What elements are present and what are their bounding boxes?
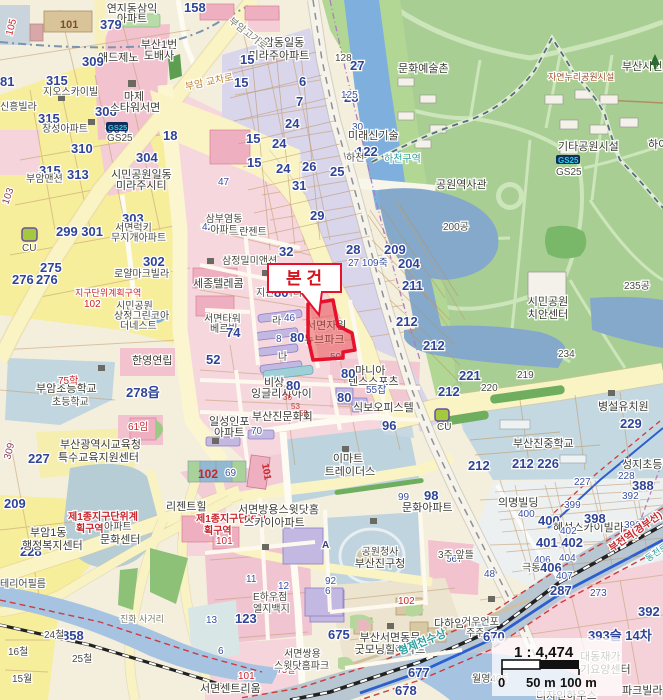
svg-text:13: 13	[206, 615, 218, 626]
svg-text:초등학교: 초등학교	[52, 396, 89, 408]
svg-text:GS25: GS25	[558, 156, 579, 165]
svg-text:미라주시티: 미라주시티	[116, 179, 167, 192]
svg-text:46: 46	[284, 313, 296, 324]
svg-text:100 m: 100 m	[560, 675, 597, 690]
svg-text:101: 101	[238, 671, 255, 682]
svg-text:성지초등학: 성지초등학	[622, 458, 663, 471]
svg-text:도배사: 도배사	[144, 49, 174, 62]
svg-text:81: 81	[0, 74, 14, 89]
svg-text:50 m: 50 m	[526, 675, 556, 690]
svg-text:부산진구청: 부산진구청	[355, 557, 406, 570]
svg-text:서면쌍용: 서면쌍용	[284, 648, 321, 660]
svg-text:리젠트힐: 리젠트힐	[166, 500, 206, 513]
svg-text:아파트: 아파트	[104, 521, 132, 533]
svg-text:3주 앞뜰: 3주 앞뜰	[438, 549, 474, 561]
svg-text:잉글리시아이: 잉글리시아이	[251, 387, 312, 400]
svg-text:CU: CU	[22, 243, 36, 254]
svg-text:1 : 4,474: 1 : 4,474	[514, 644, 574, 661]
svg-text:101: 101	[60, 19, 78, 31]
svg-text:400: 400	[518, 509, 535, 520]
svg-text:무지개아파트: 무지개아파트	[111, 232, 166, 244]
svg-text:59: 59	[299, 409, 308, 418]
svg-text:48: 48	[484, 569, 496, 580]
svg-text:테리어필름: 테리어필름	[0, 578, 46, 590]
svg-text:서면방용스윗닷홈: 서면방용스윗닷홈	[238, 502, 319, 516]
svg-text:102: 102	[198, 467, 218, 481]
svg-text:209: 209	[384, 242, 406, 257]
svg-text:287: 287	[550, 583, 572, 598]
svg-text:96: 96	[382, 418, 396, 433]
svg-text:677: 677	[408, 665, 430, 680]
svg-text:379: 379	[100, 17, 122, 32]
svg-text:128: 128	[335, 53, 352, 64]
svg-text:234: 234	[558, 349, 575, 360]
svg-text:74: 74	[226, 325, 241, 340]
svg-text:CU: CU	[437, 422, 451, 433]
svg-text:기타공원시설: 기타공원시설	[558, 140, 619, 153]
svg-text:29: 29	[310, 208, 324, 223]
svg-text:문화센터: 문화센터	[100, 533, 140, 546]
svg-text:221: 221	[459, 368, 481, 383]
svg-text:212 226: 212 226	[512, 456, 559, 471]
svg-text:하천: 하천	[346, 151, 364, 164]
svg-text:공원역사관: 공원역사관	[436, 178, 487, 191]
svg-text:204: 204	[398, 256, 420, 271]
svg-text:399: 399	[564, 500, 581, 511]
svg-text:시민공원: 시민공원	[528, 295, 568, 308]
svg-text:하이: 하이	[648, 137, 663, 151]
svg-text:엘지백지: 엘지백지	[253, 602, 290, 615]
svg-text:101: 101	[216, 536, 233, 547]
svg-text:276: 276	[36, 272, 58, 287]
svg-text:25철: 25철	[72, 653, 92, 665]
svg-text:25: 25	[330, 164, 344, 179]
svg-text:GS25: GS25	[107, 133, 133, 144]
svg-text:극동: 극동	[522, 562, 540, 574]
svg-text:299 301: 299 301	[56, 224, 103, 239]
svg-text:부암1동: 부암1동	[30, 526, 66, 539]
svg-text:6: 6	[299, 74, 306, 89]
svg-text:8: 8	[276, 334, 282, 345]
svg-text:220: 220	[481, 383, 498, 394]
svg-text:자연누리공원시설: 자연누리공원시설	[548, 72, 614, 82]
svg-text:55잡: 55잡	[366, 384, 386, 396]
svg-text:GS25: GS25	[108, 123, 127, 132]
svg-text:GS25: GS25	[556, 167, 582, 178]
svg-text:98: 98	[424, 488, 438, 503]
svg-text:102: 102	[84, 299, 101, 310]
svg-text:407: 407	[556, 571, 573, 582]
svg-text:227: 227	[28, 451, 50, 466]
svg-text:398: 398	[584, 511, 606, 526]
svg-text:라: 라	[272, 315, 281, 327]
svg-text:파크빌라: 파크빌라	[622, 684, 662, 697]
svg-text:시민공원일동: 시민공원일동	[111, 167, 172, 181]
svg-text:678: 678	[395, 683, 417, 698]
svg-text:32: 32	[279, 244, 293, 259]
svg-text:아파트: 아파트	[214, 426, 244, 439]
svg-text:지오스카이빌: 지오스카이빌	[43, 86, 98, 98]
svg-text:309: 309	[82, 54, 104, 69]
svg-text:6: 6	[218, 646, 224, 657]
svg-text:문화예술촌: 문화예술촌	[398, 62, 449, 75]
svg-text:31: 31	[292, 178, 306, 193]
svg-text:더네스트: 더네스트	[120, 320, 157, 332]
svg-text:15: 15	[234, 75, 248, 90]
svg-text:212: 212	[468, 458, 490, 473]
svg-text:200공: 200공	[443, 221, 469, 233]
svg-text:16철: 16철	[8, 646, 28, 658]
svg-text:주주: 주주	[466, 628, 484, 639]
svg-text:212: 212	[438, 384, 460, 399]
svg-text:276: 276	[12, 272, 34, 287]
svg-text:이마트: 이마트	[333, 452, 363, 465]
svg-text:행정복지센터: 행정복지센터	[22, 539, 83, 552]
svg-text:18: 18	[163, 128, 177, 143]
svg-text:219: 219	[517, 370, 534, 381]
svg-text:7: 7	[296, 94, 303, 109]
svg-text:102: 102	[398, 596, 415, 607]
svg-text:313: 313	[67, 167, 89, 182]
svg-text:392: 392	[622, 491, 639, 502]
svg-text:식보오피스텔: 식보오피스텔	[353, 401, 414, 414]
svg-text:28: 28	[346, 242, 360, 257]
svg-text:211: 211	[402, 278, 423, 293]
svg-text:315: 315	[46, 73, 68, 88]
svg-text:문화아파트: 문화아파트	[402, 501, 453, 514]
svg-text:애드제노: 애드제노	[98, 51, 138, 64]
svg-text:80: 80	[286, 378, 300, 393]
svg-text:36: 36	[283, 393, 292, 402]
svg-text:스타워서면: 스타워서면	[110, 101, 161, 114]
svg-text:15월: 15월	[12, 673, 32, 685]
svg-text:본 건: 본 건	[286, 269, 322, 288]
svg-text:27 109죽: 27 109죽	[348, 257, 388, 269]
svg-text:80: 80	[341, 366, 355, 381]
svg-text:0: 0	[498, 675, 505, 690]
svg-text:미라주아파트: 미라주아파트	[249, 49, 310, 62]
svg-text:80: 80	[290, 330, 304, 345]
svg-text:24철: 24철	[44, 629, 64, 641]
svg-text:304: 304	[136, 150, 158, 165]
svg-text:A: A	[322, 540, 329, 551]
svg-text:일성인포: 일성인포	[209, 414, 249, 428]
svg-text:278읍: 278읍	[126, 385, 160, 400]
svg-text:15: 15	[240, 52, 254, 67]
svg-text:273: 273	[590, 588, 607, 599]
svg-text:스윗닷홈파크: 스윗닷홈파크	[274, 659, 329, 672]
svg-text:212: 212	[396, 314, 418, 329]
svg-text:특수교육지원센터: 특수교육지원센터	[58, 451, 139, 464]
svg-text:24: 24	[276, 161, 291, 176]
svg-text:27: 27	[350, 58, 364, 73]
svg-text:47: 47	[218, 177, 230, 188]
svg-text:6: 6	[325, 586, 331, 597]
svg-text:15: 15	[246, 131, 260, 146]
svg-text:서면센트리움: 서면센트리움	[200, 682, 261, 695]
svg-text:12: 12	[278, 581, 290, 592]
svg-text:진화 사거리: 진화 사거리	[120, 614, 164, 624]
svg-text:209: 209	[4, 496, 26, 511]
svg-text:235공: 235공	[624, 280, 650, 292]
svg-text:하천구역: 하천구역	[384, 152, 421, 165]
svg-text:로얄마크빌라: 로얄마크빌라	[114, 268, 169, 280]
svg-text:229: 229	[620, 416, 642, 431]
svg-text:나: 나	[278, 351, 287, 363]
svg-text:미래신기술: 미래신기술	[348, 129, 399, 142]
svg-text:392: 392	[638, 604, 660, 619]
svg-text:302: 302	[143, 254, 165, 269]
svg-text:70: 70	[251, 426, 263, 437]
svg-text:거우언포: 거우언포	[462, 616, 499, 628]
svg-text:아파트: 아파트	[210, 224, 238, 236]
svg-text:675: 675	[328, 627, 350, 642]
svg-text:158: 158	[184, 0, 206, 15]
svg-text:스카이아파트: 스카이아파트	[244, 516, 305, 529]
svg-text:11: 11	[246, 574, 257, 585]
svg-text:세종텔레콤: 세종텔레콤	[193, 277, 244, 290]
svg-text:75학: 75학	[58, 375, 78, 387]
svg-text:212: 212	[423, 338, 445, 353]
svg-text:치안센터: 치안센터	[528, 308, 568, 321]
svg-text:24: 24	[272, 136, 287, 151]
svg-text:24: 24	[285, 116, 300, 131]
svg-text:트레이더스: 트레이더스	[325, 465, 376, 478]
svg-text:125: 125	[341, 90, 358, 101]
svg-text:858: 858	[62, 628, 84, 643]
svg-text:69: 69	[225, 468, 237, 479]
svg-text:삼부염동: 삼부염동	[206, 213, 243, 225]
svg-text:61임: 61임	[128, 420, 148, 433]
svg-text:부산진중학교: 부산진중학교	[513, 437, 574, 450]
svg-text:병설유치원: 병설유치원	[598, 400, 649, 413]
svg-text:26: 26	[302, 159, 316, 174]
svg-text:401 402: 401 402	[536, 535, 583, 550]
svg-text:신흥빌라: 신흥빌라	[0, 100, 37, 113]
svg-text:창성아파트: 창성아파트	[42, 123, 88, 135]
svg-text:다하임: 다하임	[434, 616, 464, 630]
svg-text:지구단위계획구역: 지구단위계획구역	[75, 287, 141, 298]
svg-text:310: 310	[71, 141, 93, 156]
svg-text:한영연립: 한영연립	[132, 354, 172, 367]
svg-text:의명빌딩: 의명빌딩	[498, 496, 538, 509]
svg-text:공원청사: 공원청사	[362, 546, 399, 558]
svg-text:부암맨션: 부암맨션	[26, 173, 63, 185]
svg-text:227: 227	[574, 477, 591, 488]
svg-text:부산광역시교육청: 부산광역시교육청	[60, 438, 141, 451]
svg-text:15: 15	[247, 155, 261, 170]
